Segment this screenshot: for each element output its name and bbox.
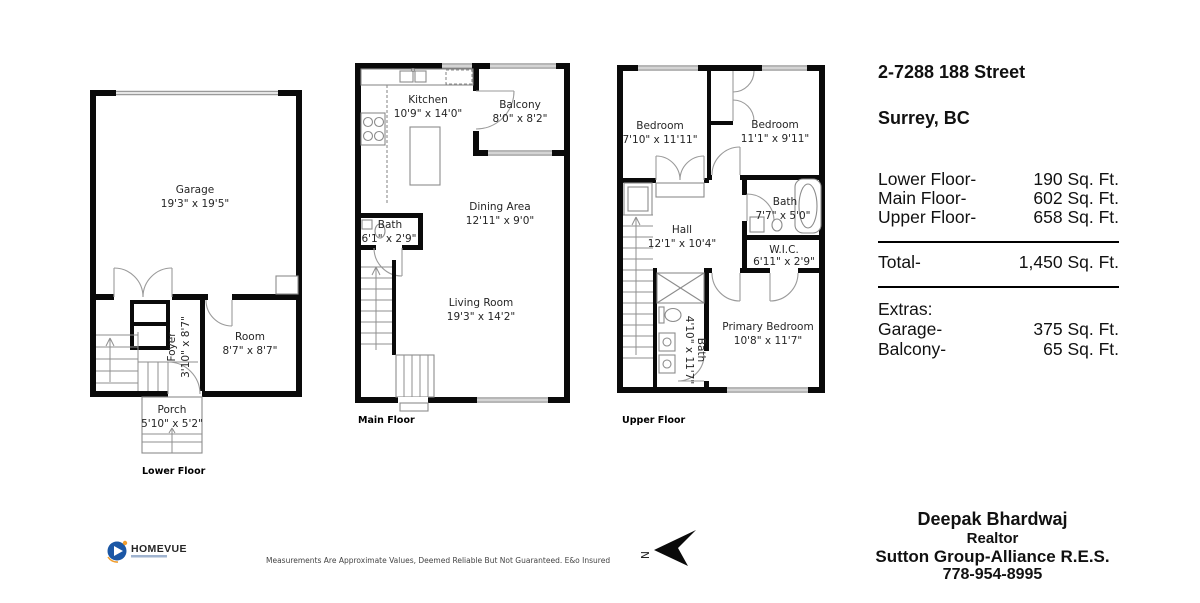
- total-label: Total-: [878, 253, 921, 272]
- living-window: [477, 397, 548, 403]
- main-floor-label: Main Floor: [358, 415, 415, 426]
- room-label-garage: Garage: [176, 184, 214, 196]
- bedroom2-window: [762, 65, 807, 71]
- divider: [878, 286, 1119, 288]
- address-line1: 2-7288 188 Street: [878, 62, 1025, 82]
- realtor-phone: 778-954-8995: [870, 566, 1115, 584]
- area-value: 190 Sq. Ft.: [1033, 170, 1119, 189]
- area-row-total: Total- 1,450 Sq. Ft.: [878, 253, 1119, 272]
- kitchen-counter: [361, 69, 473, 206]
- area-label: Lower Floor-: [878, 170, 976, 189]
- room-dims-balcony: 8'0" x 8'2": [492, 113, 547, 125]
- area-value: 658 Sq. Ft.: [1033, 208, 1119, 227]
- upper-floor-plan: Bedroom 7'10" x 11'11" Bedroom 11'1" x 9…: [612, 55, 837, 430]
- stairs-main: [361, 260, 434, 411]
- bedroom2-door: [712, 147, 740, 180]
- room-label-bedroom2: Bedroom: [751, 119, 799, 131]
- room-dims-bath1: 7'7" x 5'0": [755, 210, 810, 222]
- extra-value: 65 Sq. Ft.: [1043, 339, 1119, 359]
- room-dims-room: 8'7" x 8'7": [222, 345, 277, 357]
- realtor-title: Realtor: [870, 530, 1115, 548]
- room-dims-hall: 12'1" x 10'4": [648, 238, 716, 250]
- extra-label: Balcony-: [878, 339, 946, 359]
- area-label: Upper Floor-: [878, 208, 976, 227]
- room-label-hall: Hall: [672, 224, 692, 236]
- logo-tagline-bar: [131, 555, 167, 558]
- extras-section: Extras: Garage- 375 Sq. Ft. Balcony- 65 …: [878, 299, 1119, 359]
- realtor-name: Deepak Bhardwaj: [870, 509, 1115, 530]
- room-label-bedroom1: Bedroom: [636, 120, 684, 132]
- divider: [878, 241, 1119, 243]
- extra-row-balcony: Balcony- 65 Sq. Ft.: [878, 339, 1119, 359]
- extra-label: Garage-: [878, 319, 942, 339]
- room-dims-kitchen: 10'9" x 14'0": [394, 108, 462, 120]
- room-label-main-bath: Bath: [378, 219, 402, 231]
- room-dims-living: 19'3" x 14'2": [447, 311, 515, 323]
- area-summary-panel: 2-7288 188 Street Surrey, BC Lower Floor…: [878, 61, 1119, 359]
- lower-floor-plan: Garage 19'3" x 19'5" Foyer 3'10" x 8'7" …: [80, 80, 320, 480]
- disclaimer-text: Measurements Are Approximate Values, Dee…: [266, 556, 610, 565]
- main-floor-plan: Kitchen 10'9" x 14'0" Balcony 8'0" x 8'2…: [350, 55, 580, 430]
- floor-area-rows: Lower Floor- 190 Sq. Ft. Main Floor- 602…: [878, 170, 1119, 227]
- laundry: [657, 273, 704, 303]
- realtor-company: Sutton Group-Alliance R.E.S.: [870, 548, 1115, 566]
- room-label-porch: Porch: [158, 404, 187, 416]
- room-dims-porch: 5'10" x 5'2": [141, 418, 203, 430]
- north-label: N: [640, 551, 652, 559]
- homevue-logo: HOMEVUE: [105, 537, 200, 565]
- bedroom1-window: [638, 65, 698, 71]
- bedroom1-closet: [624, 156, 704, 215]
- realtor-block: Deepak Bhardwaj Realtor Sutton Group-All…: [870, 509, 1115, 584]
- room-door: [206, 294, 232, 326]
- homevue-logo-text: HOMEVUE: [131, 543, 187, 555]
- room-dims-main-bath: 6'1" x 2'9": [361, 233, 416, 245]
- north-arrow-icon: [654, 530, 696, 566]
- room-dims-primary: 10'8" x 11'7": [734, 335, 802, 347]
- lower-floor-label: Lower Floor: [142, 466, 206, 477]
- room-dims-bedroom2: 11'1" x 9'11": [741, 133, 809, 145]
- address-line2: Surrey, BC: [878, 108, 970, 128]
- north-arrow: N: [640, 524, 710, 574]
- room-label-foyer: Foyer: [166, 332, 178, 362]
- extras-heading: Extras:: [878, 299, 1119, 319]
- balcony-window-top: [490, 63, 556, 69]
- room-dims-dining: 12'11" x 9'0": [466, 215, 534, 227]
- balcony-door: [473, 91, 514, 131]
- room-label-room: Room: [235, 331, 265, 343]
- room-label-bath1: Bath: [773, 196, 797, 208]
- area-value: 602 Sq. Ft.: [1033, 189, 1119, 208]
- room-dims-bath2: 4'10" x 11'7": [683, 316, 695, 384]
- room-dims-foyer: 3'10" x 8'7": [180, 316, 192, 378]
- property-address: 2-7288 188 Street Surrey, BC: [878, 61, 1119, 130]
- room-dims-wic: 6'11" x 2'9": [753, 256, 815, 268]
- balcony-window-bottom: [488, 150, 552, 156]
- area-row-main: Main Floor- 602 Sq. Ft.: [878, 189, 1119, 208]
- floorplan-sheet: Garage 19'3" x 19'5" Foyer 3'10" x 8'7" …: [0, 0, 1200, 603]
- homevue-logo-icon: [108, 541, 128, 562]
- garage-door: [116, 90, 278, 96]
- area-row-lower: Lower Floor- 190 Sq. Ft.: [878, 170, 1119, 189]
- area-row-upper: Upper Floor- 658 Sq. Ft.: [878, 208, 1119, 227]
- primary-window: [727, 387, 808, 393]
- room-label-living: Living Room: [449, 297, 513, 309]
- room-label-bath2: Bath: [695, 338, 707, 362]
- room-label-dining: Dining Area: [469, 201, 530, 213]
- room-label-kitchen: Kitchen: [408, 94, 447, 106]
- extra-value: 375 Sq. Ft.: [1033, 319, 1119, 339]
- mechanical-closet: [132, 302, 168, 348]
- room-label-balcony: Balcony: [499, 99, 541, 111]
- total-value: 1,450 Sq. Ft.: [1019, 253, 1119, 272]
- area-label: Main Floor-: [878, 189, 967, 208]
- window: [442, 63, 472, 69]
- room-dims-garage: 19'3" x 19'5": [161, 198, 229, 210]
- room-dims-bedroom1: 7'10" x 11'11": [622, 134, 697, 146]
- stairs-upper: [623, 215, 653, 358]
- room-label-primary: Primary Bedroom: [722, 321, 813, 333]
- extra-row-garage: Garage- 375 Sq. Ft.: [878, 319, 1119, 339]
- room-label-wic: W.I.C.: [769, 244, 799, 256]
- upper-floor-label: Upper Floor: [622, 415, 686, 426]
- bedroom2-closet: [711, 71, 754, 125]
